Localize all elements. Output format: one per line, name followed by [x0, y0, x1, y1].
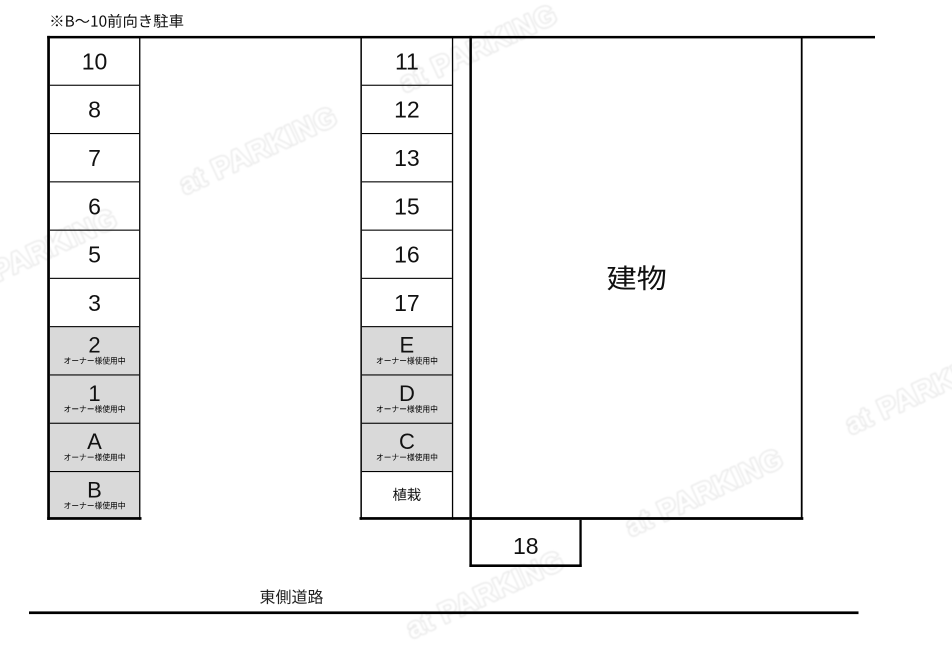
svg-text:D: D	[399, 381, 415, 406]
svg-text:3: 3	[88, 290, 101, 316]
svg-text:2: 2	[88, 333, 100, 358]
svg-text:5: 5	[88, 242, 101, 268]
svg-text:11: 11	[395, 48, 419, 74]
svg-text:B: B	[87, 477, 102, 502]
svg-text:8: 8	[88, 97, 101, 123]
svg-text:17: 17	[394, 290, 420, 316]
svg-text:12: 12	[394, 97, 420, 123]
svg-text:15: 15	[394, 193, 420, 219]
svg-text:E: E	[400, 333, 415, 358]
svg-text:16: 16	[394, 242, 420, 268]
svg-text:C: C	[399, 429, 415, 454]
svg-text:1: 1	[88, 381, 100, 406]
svg-text:A: A	[87, 429, 102, 454]
svg-text:10: 10	[82, 48, 108, 74]
svg-text:6: 6	[88, 193, 101, 219]
svg-text:7: 7	[88, 145, 101, 171]
svg-text:13: 13	[394, 145, 420, 171]
svg-text:18: 18	[513, 533, 539, 559]
